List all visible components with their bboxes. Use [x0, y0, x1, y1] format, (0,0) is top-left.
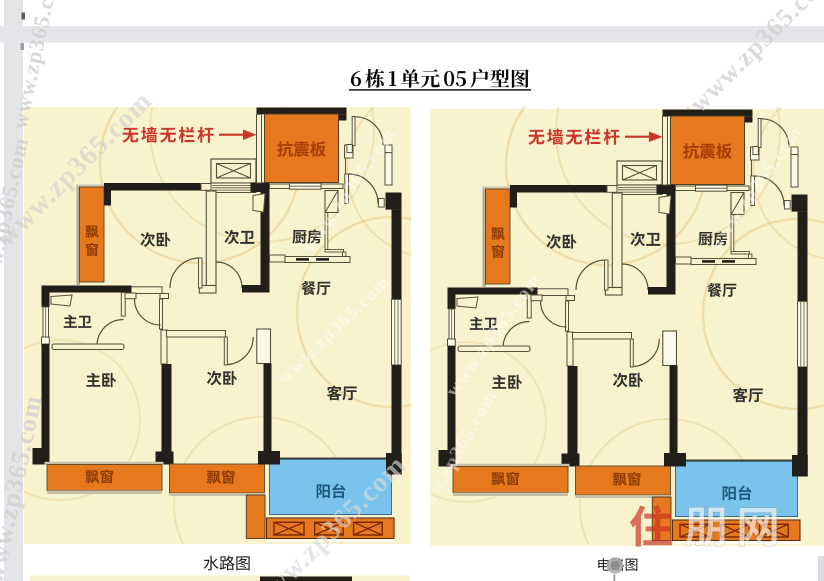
- svg-text:www.zp365.com: www.zp365.com: [650, 546, 791, 560]
